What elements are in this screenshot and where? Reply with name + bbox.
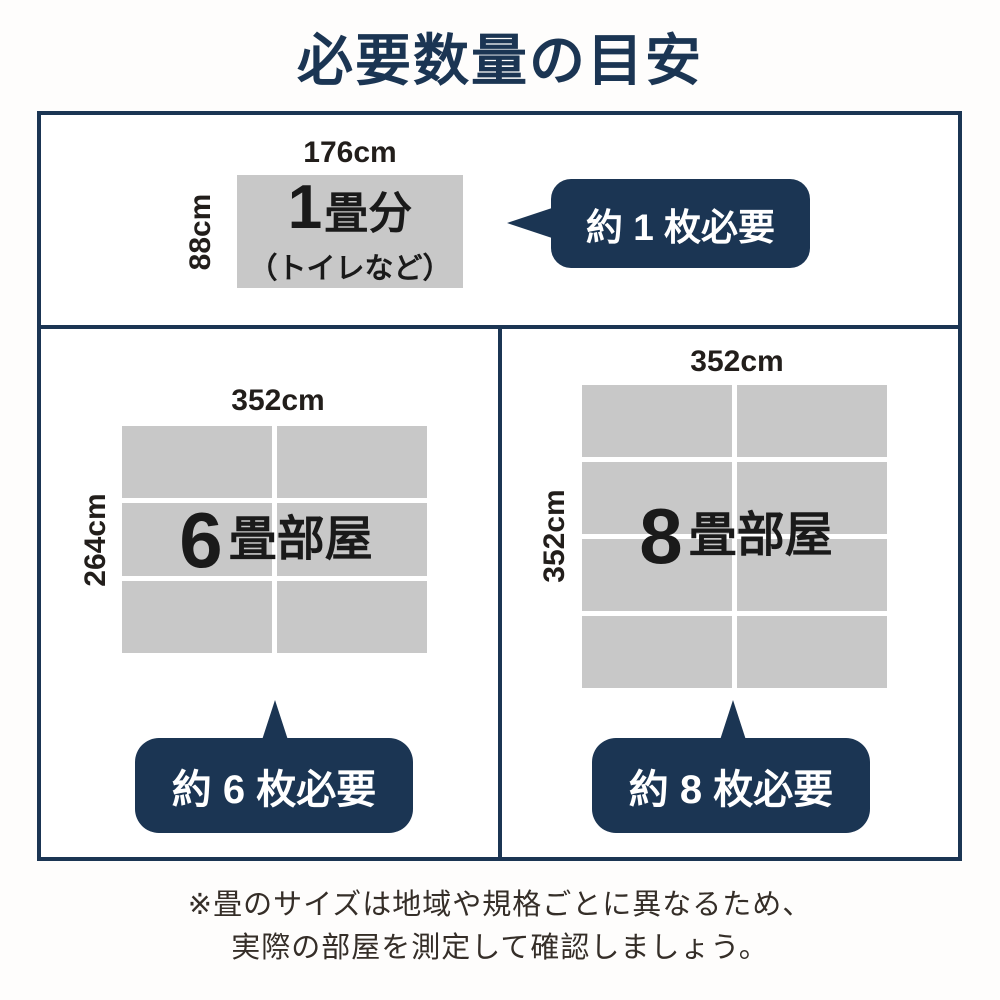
six-tatami-height-label: 264cm: [79, 493, 113, 586]
tatami-cell: [122, 581, 272, 653]
one-tatami-bubble: 約 1 枚必要: [551, 179, 810, 268]
six-tatami-suffix: 畳部屋: [229, 516, 373, 564]
tatami-cell: [582, 385, 732, 457]
eight-tatami-suffix: 畳部屋: [689, 512, 833, 560]
speech-tail-left-icon: [507, 208, 552, 238]
speech-tail-up-icon: [720, 700, 746, 740]
one-tatami-suffix: 畳分: [324, 189, 412, 238]
eight-tatami-count: 8: [639, 497, 682, 575]
six-tatami-bubble: 約 6 枚必要: [135, 738, 413, 833]
infographic-canvas: 必要数量の目安 176cm 88cm 1畳分 （トイレなど） 約 1 枚必要 3…: [0, 0, 1000, 1000]
six-tatami-count: 6: [179, 501, 222, 579]
page-title: 必要数量の目安: [0, 30, 1000, 92]
footnote: ※畳のサイズは地域や規格ごとに異なるため、 実際の部屋を測定して確認しましょう。: [0, 884, 1000, 970]
eight-tatami-height-label: 352cm: [538, 489, 572, 582]
tatami-cell: [737, 385, 887, 457]
eight-tatami-width-label: 352cm: [690, 345, 783, 379]
tatami-cell: [737, 616, 887, 688]
footnote-line2: 実際の部屋を測定して確認しましょう。: [0, 927, 1000, 970]
speech-tail-up-icon: [262, 700, 288, 740]
six-tatami-width-label: 352cm: [231, 384, 324, 418]
one-tatami-subtitle: （トイレなど）: [248, 245, 451, 287]
eight-tatami-room-label: 8 畳部屋: [639, 497, 832, 575]
vertical-divider: [498, 325, 502, 861]
eight-tatami-bubble: 約 8 枚必要: [592, 738, 870, 833]
one-tatami-height-label: 88cm: [184, 194, 218, 271]
tatami-cell: [277, 581, 427, 653]
one-tatami-title: 1畳分: [288, 177, 412, 239]
footnote-line1: ※畳のサイズは地域や規格ごとに異なるため、: [0, 884, 1000, 927]
one-tatami-count: 1: [288, 173, 324, 242]
tatami-cell: [277, 426, 427, 498]
six-tatami-room-label: 6 畳部屋: [179, 501, 372, 579]
one-tatami-box: 1畳分 （トイレなど）: [237, 175, 463, 288]
one-tatami-width-label: 176cm: [303, 136, 396, 170]
tatami-cell: [582, 616, 732, 688]
tatami-cell: [122, 426, 272, 498]
